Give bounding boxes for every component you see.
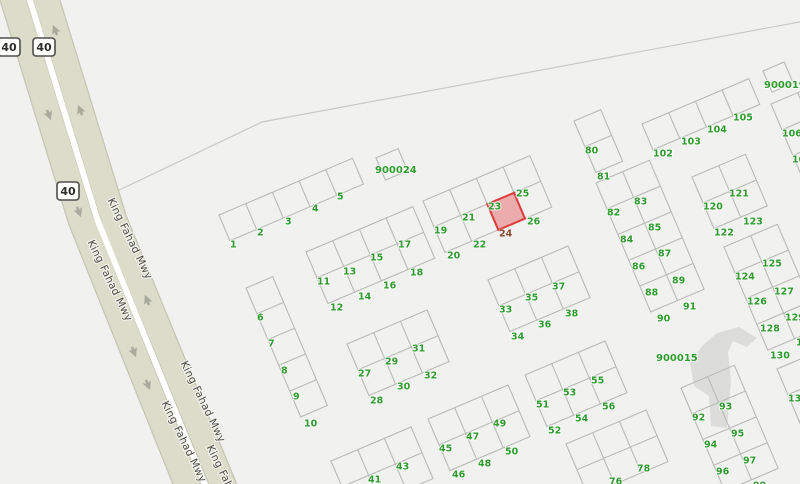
parcel-number: 55 [591,376,604,387]
parcel-number: 94 [704,440,718,451]
map-svg[interactable]: 1234567891011121314151617181920212223252… [0,0,800,484]
route-shield: 40 [0,38,20,56]
parcel-number: 43 [396,462,409,473]
parcel-number: 107 [792,155,800,166]
parcel-number: 86 [632,262,646,273]
parcel-number: 50 [505,447,519,458]
svg-text:40: 40 [36,41,52,54]
parcel-number: 18 [410,268,424,279]
parcel-number: 41 [368,475,381,484]
parcel-number: 38 [565,309,579,320]
parcel-number: 47 [466,432,479,443]
parcel-number: 89 [672,276,685,287]
parcel-number: 88 [645,288,659,299]
parcel-number: 4 [312,204,319,215]
parcel-number: 81 [597,172,610,183]
parcel-number: 82 [607,208,620,219]
parcel-number: 21 [462,213,475,224]
parcel-number: 17 [398,240,411,251]
parcel-number: 127 [774,287,794,298]
parcel-number: 36 [538,320,552,331]
parcel-number: 54 [575,414,589,425]
selected-parcel-number: 24 [499,229,513,240]
parcel-number: 7 [268,339,275,350]
parcel-number: 80 [585,146,599,157]
parcel-number: 25 [516,189,529,200]
parcel-number: 12 [330,303,343,314]
route-shield: 40 [57,182,79,200]
parcel-number: 106 [782,129,800,140]
parcel-number: 130 [770,351,790,362]
parcel-number: 131 [796,338,800,349]
parcel-number: 128 [760,324,780,335]
parcel-number: 91 [683,302,696,313]
parcel-number: 3 [285,217,292,228]
parcel-number: 132 [788,394,800,405]
parcel-number: 8 [281,366,288,377]
parcel-number: 105 [733,113,753,124]
map-viewport[interactable]: 1234567891011121314151617181920212223252… [0,0,800,484]
parcel-number: 85 [648,223,661,234]
parcel-number: 90 [657,314,671,325]
parcel-number: 6 [257,313,264,324]
parcel-number: 125 [762,259,782,270]
parcel-number: 13 [343,267,356,278]
parcel-number: 35 [525,293,538,304]
parcel-number: 49 [493,419,506,430]
parcel-number: 93 [719,402,732,413]
block-number: 900015 [656,353,698,364]
parcel-number: 33 [499,305,512,316]
parcel-number: 9 [293,392,300,403]
parcel-number: 56 [602,402,616,413]
parcel-number: 27 [358,369,371,380]
parcel-number: 20 [447,251,461,262]
parcel-number: 95 [731,429,744,440]
svg-text:40: 40 [1,41,17,54]
parcel-number: 48 [478,459,492,470]
parcel-number: 103 [681,137,701,148]
parcel-number: 23 [488,202,501,213]
parcel-number: 34 [511,332,525,343]
parcel-number: 11 [317,277,330,288]
parcel-number: 22 [473,240,486,251]
parcel-number: 97 [743,456,756,467]
parcel-number: 10 [304,419,318,430]
parcel-number: 31 [412,344,425,355]
parcel-number: 51 [536,400,549,411]
parcel-number: 16 [383,281,397,292]
parcel-number: 102 [653,149,673,160]
block-number: 900019 [764,80,800,91]
parcel-number: 124 [735,272,755,283]
parcel-number: 5 [337,192,344,203]
parcel-number: 104 [707,125,727,136]
parcel-number: 83 [634,197,647,208]
parcel-number: 84 [620,235,634,246]
parcel-number: 122 [714,228,734,239]
parcel-number: 87 [658,249,671,260]
parcel-number: 15 [370,253,383,264]
parcel-number: 46 [452,470,466,481]
parcel-number: 26 [527,217,541,228]
parcel-number: 126 [747,297,767,308]
parcel-number: 14 [358,292,372,303]
parcel-number: 30 [397,382,411,393]
parcel-number: 76 [609,477,623,484]
parcel-number: 78 [637,464,651,475]
parcel-number: 37 [552,282,565,293]
block-number: 900024 [375,165,417,176]
parcel-number: 123 [743,217,763,228]
parcel-number: 120 [703,202,723,213]
parcel-number: 19 [434,226,447,237]
parcel-number: 32 [424,371,437,382]
svg-text:40: 40 [60,185,76,198]
parcel-number: 121 [729,189,749,200]
parcel-number: 45 [439,444,452,455]
parcel-number: 1 [230,240,237,251]
parcel-number: 52 [548,426,561,437]
parcel-number: 129 [785,313,800,324]
parcel-number: 29 [385,357,398,368]
parcel-number: 53 [563,388,576,399]
parcel-number: 92 [692,413,705,424]
route-shield: 40 [33,38,55,56]
parcel-number: 99 [753,481,766,484]
parcel-number: 2 [257,228,264,239]
parcel-number: 96 [716,467,730,478]
parcel-number: 28 [370,396,384,407]
